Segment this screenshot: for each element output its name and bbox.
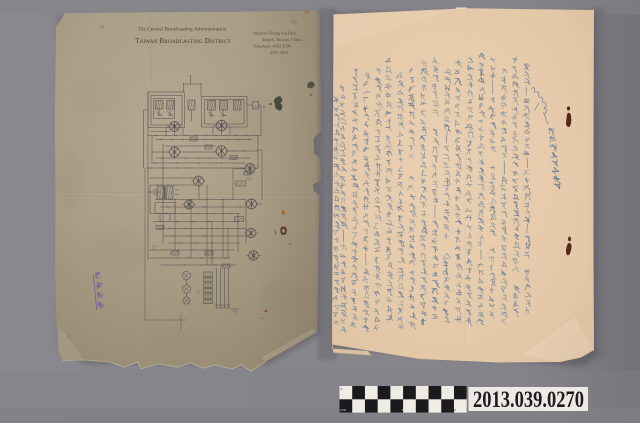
svg-text:0CM: 0CM — [341, 408, 346, 412]
svg-text:2591 3011: 2591 3011 — [270, 50, 289, 55]
svg-text:Taiwan Broadcasting District: Taiwan Broadcasting District — [135, 38, 231, 45]
svg-text:Address Chung Sai Park: Address Chung Sai Park — [253, 31, 297, 36]
svg-text:5CM: 5CM — [402, 408, 407, 412]
svg-text:Telephone 4563 2596: Telephone 4563 2596 — [253, 44, 292, 49]
svg-text:The Central Broadcasting Admin: The Central Broadcasting Administration — [137, 27, 226, 33]
svg-text:2013.039.0270: 2013.039.0270 — [473, 387, 584, 413]
svg-text:10CM: 10CM — [449, 408, 456, 412]
